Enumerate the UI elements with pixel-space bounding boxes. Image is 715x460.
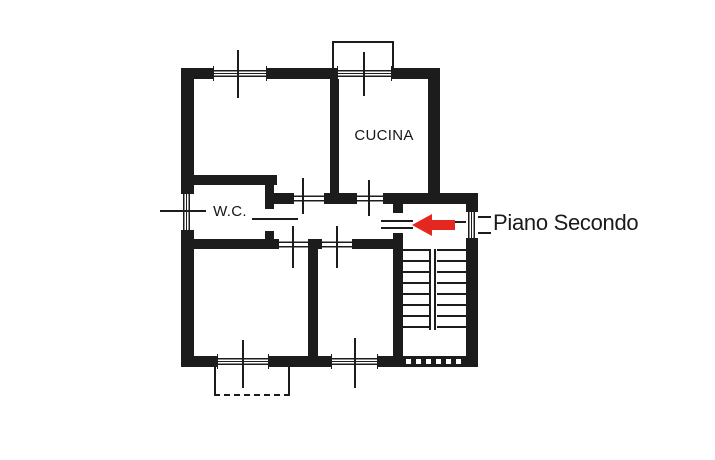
stair-flight-left: [403, 249, 429, 330]
window-end-tick: [331, 354, 332, 369]
kitchen-label: CUCINA: [336, 128, 432, 143]
balcony-top-outline: [332, 41, 394, 70]
door-tick-entry: [381, 220, 413, 222]
window-end-tick: [377, 354, 378, 369]
window-end-tick: [213, 66, 214, 81]
door-marker-living-room: [294, 193, 324, 204]
door-tick-living-room: [302, 178, 304, 214]
window-marker-wc: [181, 194, 194, 230]
stair-divider: [429, 249, 431, 330]
balcony-bottom-outline: [214, 367, 290, 396]
stair-flight-right: [437, 249, 466, 330]
wc-label: W.C.: [194, 204, 266, 219]
left-arrow-icon: [410, 211, 470, 239]
door-tick-bottom-left-room: [292, 226, 294, 268]
door-tick-bottom-middle-room: [336, 226, 338, 268]
door-tick-kitchen: [368, 180, 370, 216]
window-end-tick: [266, 66, 267, 81]
stair-divider: [434, 249, 436, 330]
wall-bottom-rooms-divider: [308, 249, 318, 356]
door-marker-wc: [265, 209, 274, 231]
window-tick-top-left-room: [237, 50, 239, 98]
floor-label: Piano Secondo: [493, 210, 638, 236]
window-tick-entry: [478, 232, 491, 234]
wall-wc-top: [181, 175, 277, 185]
door-tick-entry: [381, 227, 413, 229]
stair-landing-hatch: [406, 359, 464, 364]
door-marker-entry: [393, 213, 403, 233]
floor-plan-canvas: CUCINA W.C. Piano Secondo: [0, 0, 715, 460]
window-tick-entry: [478, 216, 491, 218]
door-marker-kitchen: [357, 193, 383, 204]
window-tick-bottom-middle-room: [354, 338, 356, 388]
window-marker-top-left-room: [214, 68, 266, 79]
